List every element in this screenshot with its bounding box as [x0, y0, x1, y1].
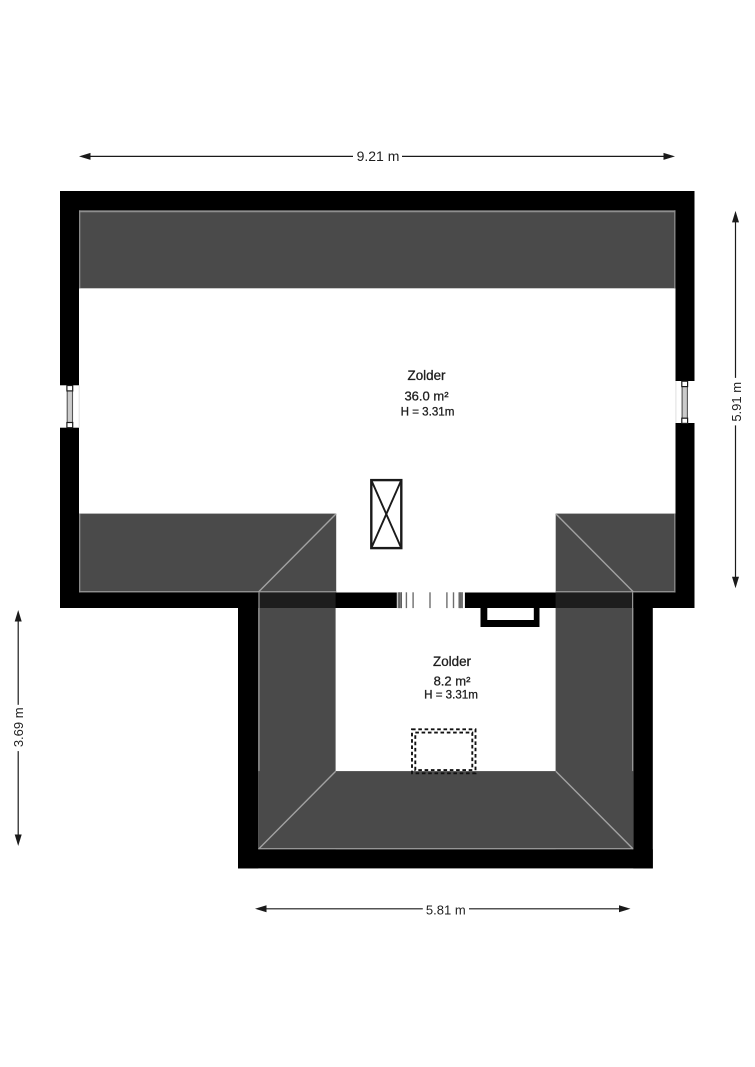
svg-text:Zolder: Zolder: [433, 654, 471, 669]
svg-text:H = 3.31m: H = 3.31m: [401, 406, 455, 419]
svg-text:H = 3.31m: H = 3.31m: [424, 689, 478, 702]
svg-text:3.69 m: 3.69 m: [11, 707, 26, 747]
svg-text:Zolder: Zolder: [408, 368, 446, 383]
svg-text:8.2 m²: 8.2 m²: [434, 674, 472, 689]
svg-text:9.21 m: 9.21 m: [357, 148, 400, 164]
svg-text:36.0 m²: 36.0 m²: [404, 388, 449, 403]
svg-text:5.91 m: 5.91 m: [729, 382, 744, 422]
svg-text:5.81 m: 5.81 m: [426, 903, 466, 918]
